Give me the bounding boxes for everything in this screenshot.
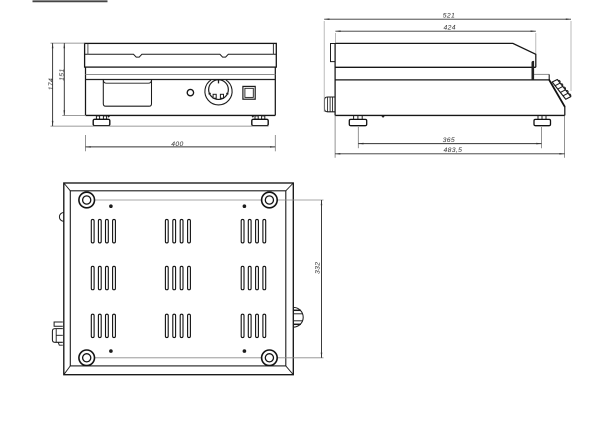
svg-text:365: 365 (443, 137, 455, 144)
svg-text:151: 151 (59, 68, 66, 80)
svg-text:400: 400 (171, 141, 183, 148)
svg-text:521: 521 (443, 13, 455, 20)
svg-text:332: 332 (315, 262, 322, 274)
svg-text:174: 174 (48, 78, 55, 90)
svg-text:483,5: 483,5 (443, 147, 462, 154)
svg-text:424: 424 (443, 25, 455, 32)
